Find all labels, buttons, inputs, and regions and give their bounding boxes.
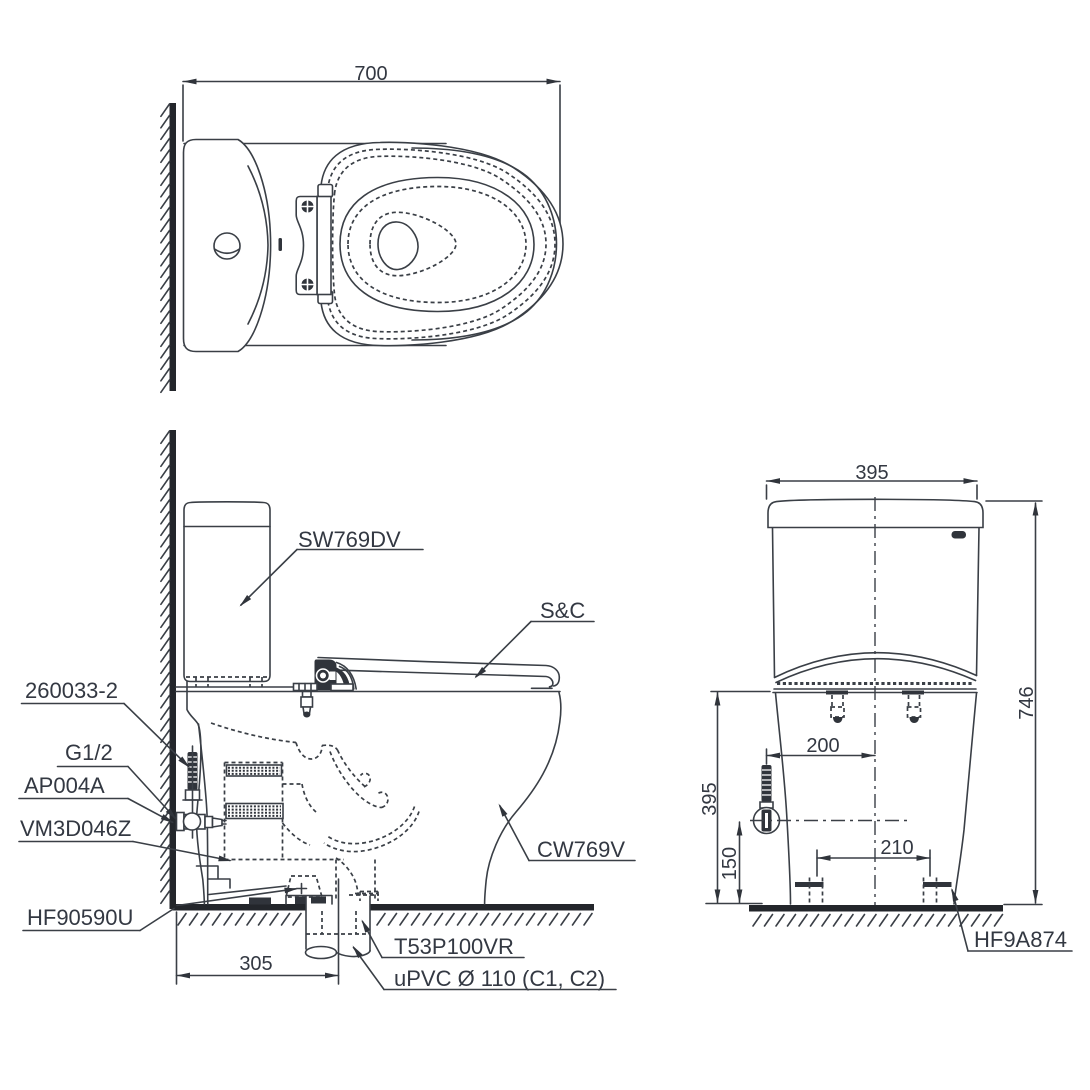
svg-text:260033-2: 260033-2 <box>25 678 118 703</box>
svg-text:200: 200 <box>806 735 839 757</box>
svg-text:SW769DV: SW769DV <box>298 527 401 552</box>
svg-text:T53P100VR: T53P100VR <box>394 934 514 959</box>
svg-text:305: 305 <box>239 953 272 975</box>
svg-text:G1/2: G1/2 <box>65 740 113 765</box>
svg-text:210: 210 <box>880 837 913 859</box>
svg-text:VM3D046Z: VM3D046Z <box>20 816 131 841</box>
svg-text:CW769V: CW769V <box>537 837 625 862</box>
svg-text:HF90590U: HF90590U <box>27 905 133 930</box>
svg-text:395: 395 <box>855 462 888 484</box>
svg-text:uPVC Ø 110 (C1, C2): uPVC Ø 110 (C1, C2) <box>394 966 605 991</box>
svg-text:746: 746 <box>1016 686 1038 719</box>
svg-text:HF9A874: HF9A874 <box>974 927 1067 952</box>
svg-text:395: 395 <box>699 782 721 815</box>
svg-text:150: 150 <box>719 847 741 880</box>
svg-text:700: 700 <box>354 63 387 85</box>
svg-text:S&C: S&C <box>540 598 585 623</box>
svg-text:AP004A: AP004A <box>24 773 105 798</box>
